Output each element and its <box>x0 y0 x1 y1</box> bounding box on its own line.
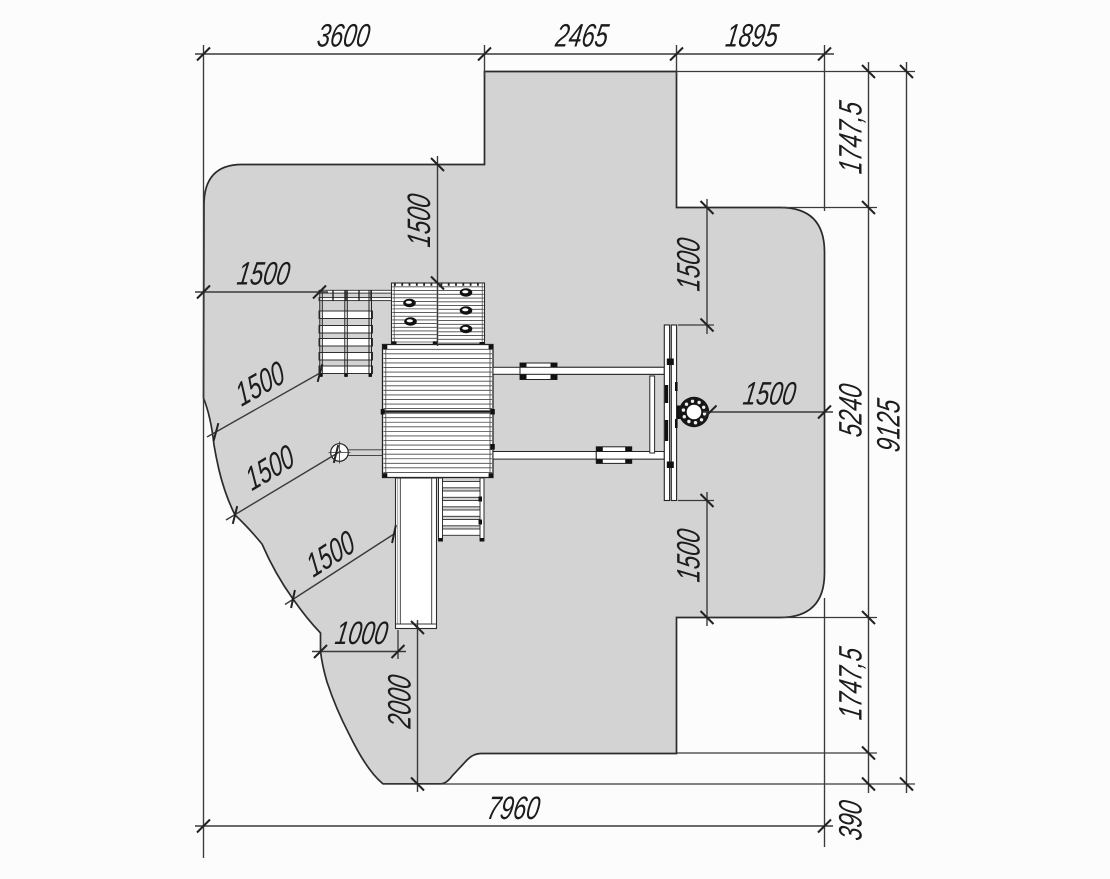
svg-text:1500: 1500 <box>671 235 707 293</box>
svg-text:1500: 1500 <box>741 376 799 412</box>
svg-text:1500: 1500 <box>235 256 293 292</box>
svg-text:7960: 7960 <box>485 791 543 827</box>
svg-text:1500: 1500 <box>402 191 438 249</box>
svg-text:5240: 5240 <box>833 381 869 439</box>
svg-text:1747,5: 1747,5 <box>833 645 869 722</box>
svg-text:1500: 1500 <box>671 526 707 584</box>
svg-text:390: 390 <box>833 798 869 843</box>
svg-text:2465: 2465 <box>552 18 611 54</box>
svg-text:1747,5: 1747,5 <box>833 99 869 176</box>
svg-text:1000: 1000 <box>333 616 391 652</box>
svg-text:1895: 1895 <box>723 18 781 54</box>
svg-text:9125: 9125 <box>871 396 907 454</box>
svg-text:2000: 2000 <box>382 672 418 731</box>
svg-text:3600: 3600 <box>315 18 373 54</box>
